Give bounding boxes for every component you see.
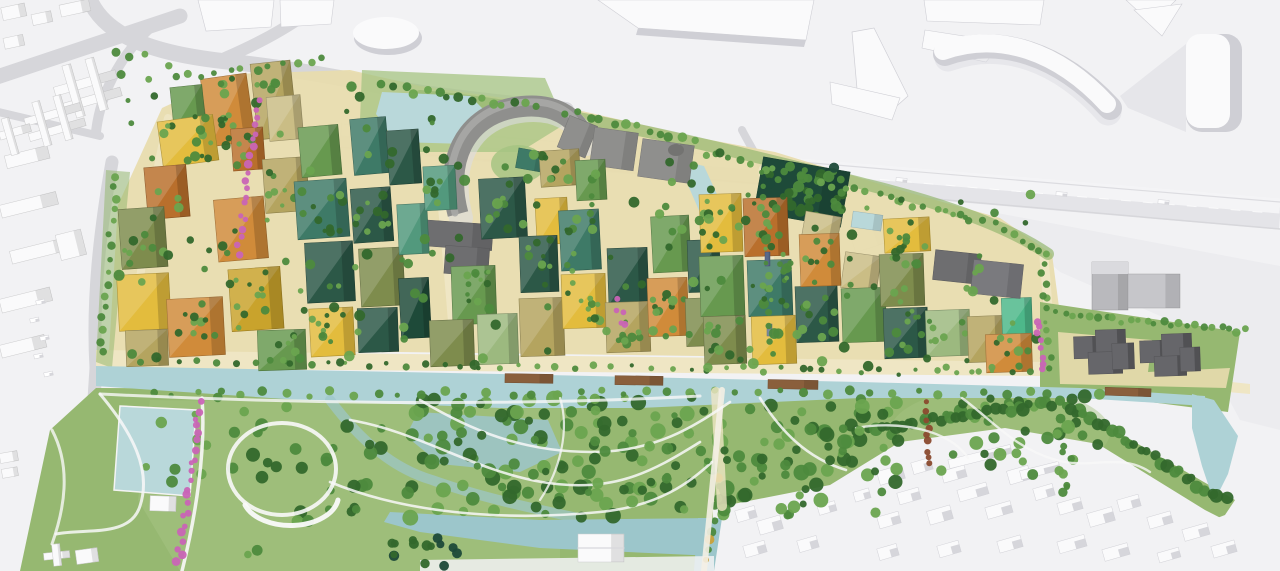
ramp-building xyxy=(1128,274,1180,308)
context-block xyxy=(280,0,334,27)
masterplan-rendering: Aerial bird's-eye architectural masterpl… xyxy=(0,0,1280,571)
southwest-house xyxy=(75,548,99,565)
canal-deck xyxy=(505,374,553,384)
masterplan-scene-canvas xyxy=(0,0,1280,571)
context-round-building-top xyxy=(353,17,419,49)
canal-deck xyxy=(768,380,818,390)
ramp-building-roof xyxy=(1092,262,1128,274)
context-tall-tower-face xyxy=(1186,34,1230,128)
context-block xyxy=(198,0,274,31)
park-shed xyxy=(150,496,177,512)
canal-deck xyxy=(615,376,663,386)
context-block xyxy=(924,0,1044,25)
rect-pond xyxy=(114,406,196,496)
gray-slab-drum xyxy=(668,144,684,156)
canal-deck xyxy=(1105,387,1151,397)
